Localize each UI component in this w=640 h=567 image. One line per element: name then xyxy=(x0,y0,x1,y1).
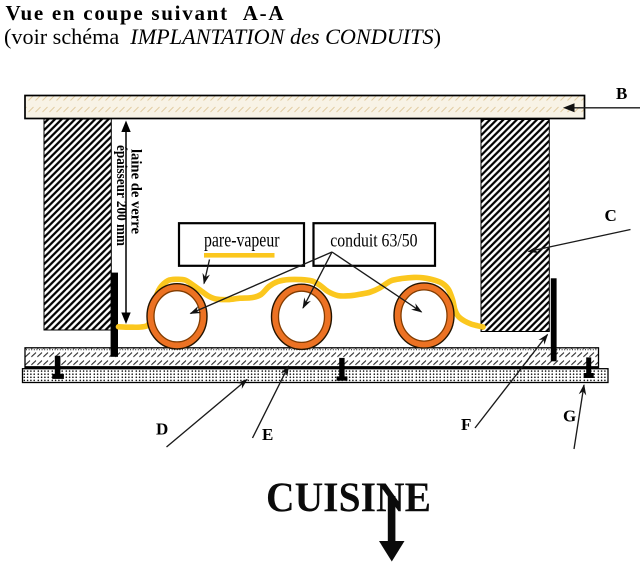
svg-text:B: B xyxy=(616,84,627,103)
svg-text:C: C xyxy=(605,206,617,225)
svg-text:E: E xyxy=(262,425,273,444)
svg-text:G: G xyxy=(563,407,576,426)
svg-text:F: F xyxy=(461,415,471,434)
svg-text:conduit 63/50: conduit 63/50 xyxy=(330,232,417,252)
svg-text:CUISINE: CUISINE xyxy=(266,476,431,522)
svg-text:D: D xyxy=(156,420,168,439)
svg-text:Vue en coupe suivant A-A: Vue en coupe suivant A-A xyxy=(6,1,285,25)
svg-text:épaisseur 200 mm: épaisseur 200 mm xyxy=(113,145,129,246)
svg-text:(voir schéma IMPLANTATION des: (voir schéma IMPLANTATION des CONDUITS) xyxy=(4,24,441,49)
svg-text:pare-vapeur: pare-vapeur xyxy=(204,231,280,252)
